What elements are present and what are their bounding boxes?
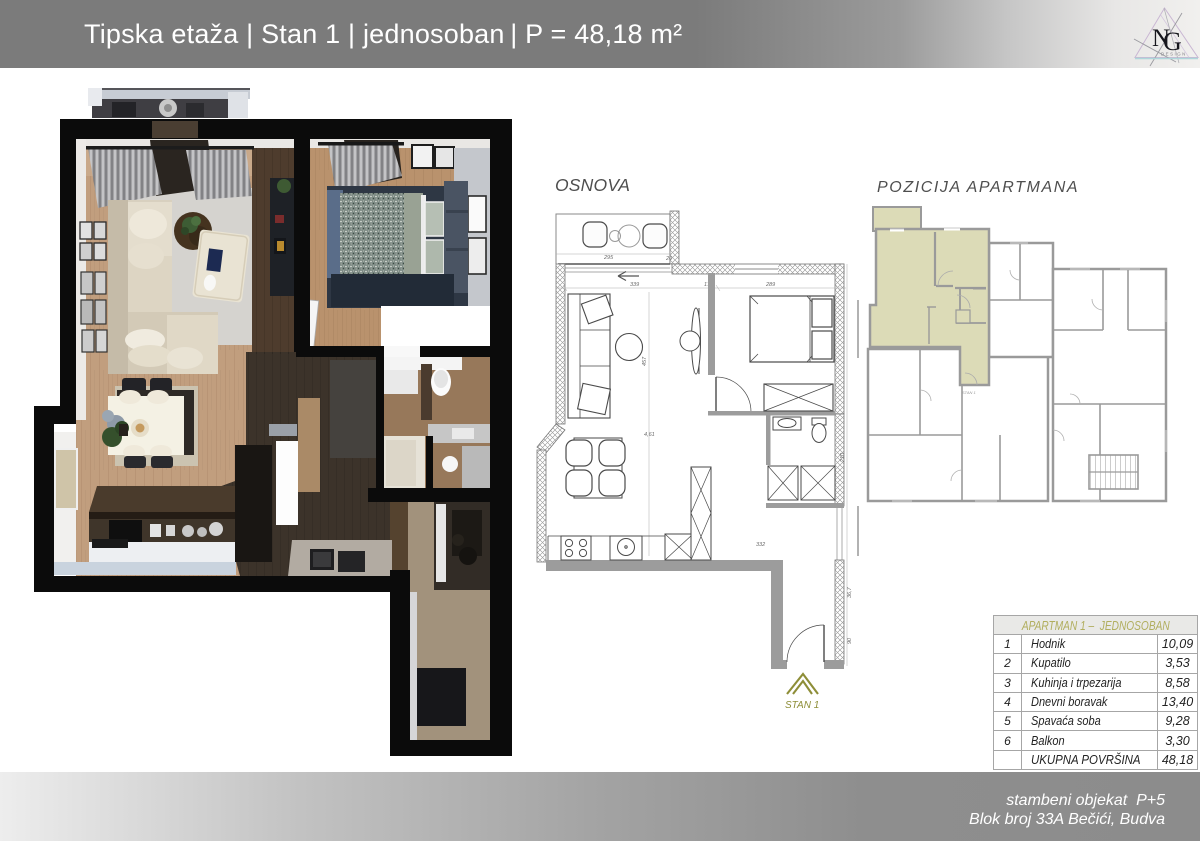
svg-text:20: 20 xyxy=(665,256,673,262)
svg-text:DESIGN: DESIGN xyxy=(1161,52,1187,57)
svg-text:36,7: 36,7 xyxy=(847,586,853,598)
svg-text:STAN 1: STAN 1 xyxy=(962,390,976,395)
svg-text:STAN 1: STAN 1 xyxy=(785,700,819,711)
svg-text:90: 90 xyxy=(847,637,853,644)
svg-text:4,61: 4,61 xyxy=(644,432,655,438)
svg-text:295: 295 xyxy=(603,255,614,261)
svg-text:289: 289 xyxy=(765,282,775,288)
svg-text:332: 332 xyxy=(756,542,765,548)
svg-text:339: 339 xyxy=(630,282,639,288)
svg-text:210: 210 xyxy=(840,452,846,463)
svg-text:457: 457 xyxy=(642,356,648,366)
